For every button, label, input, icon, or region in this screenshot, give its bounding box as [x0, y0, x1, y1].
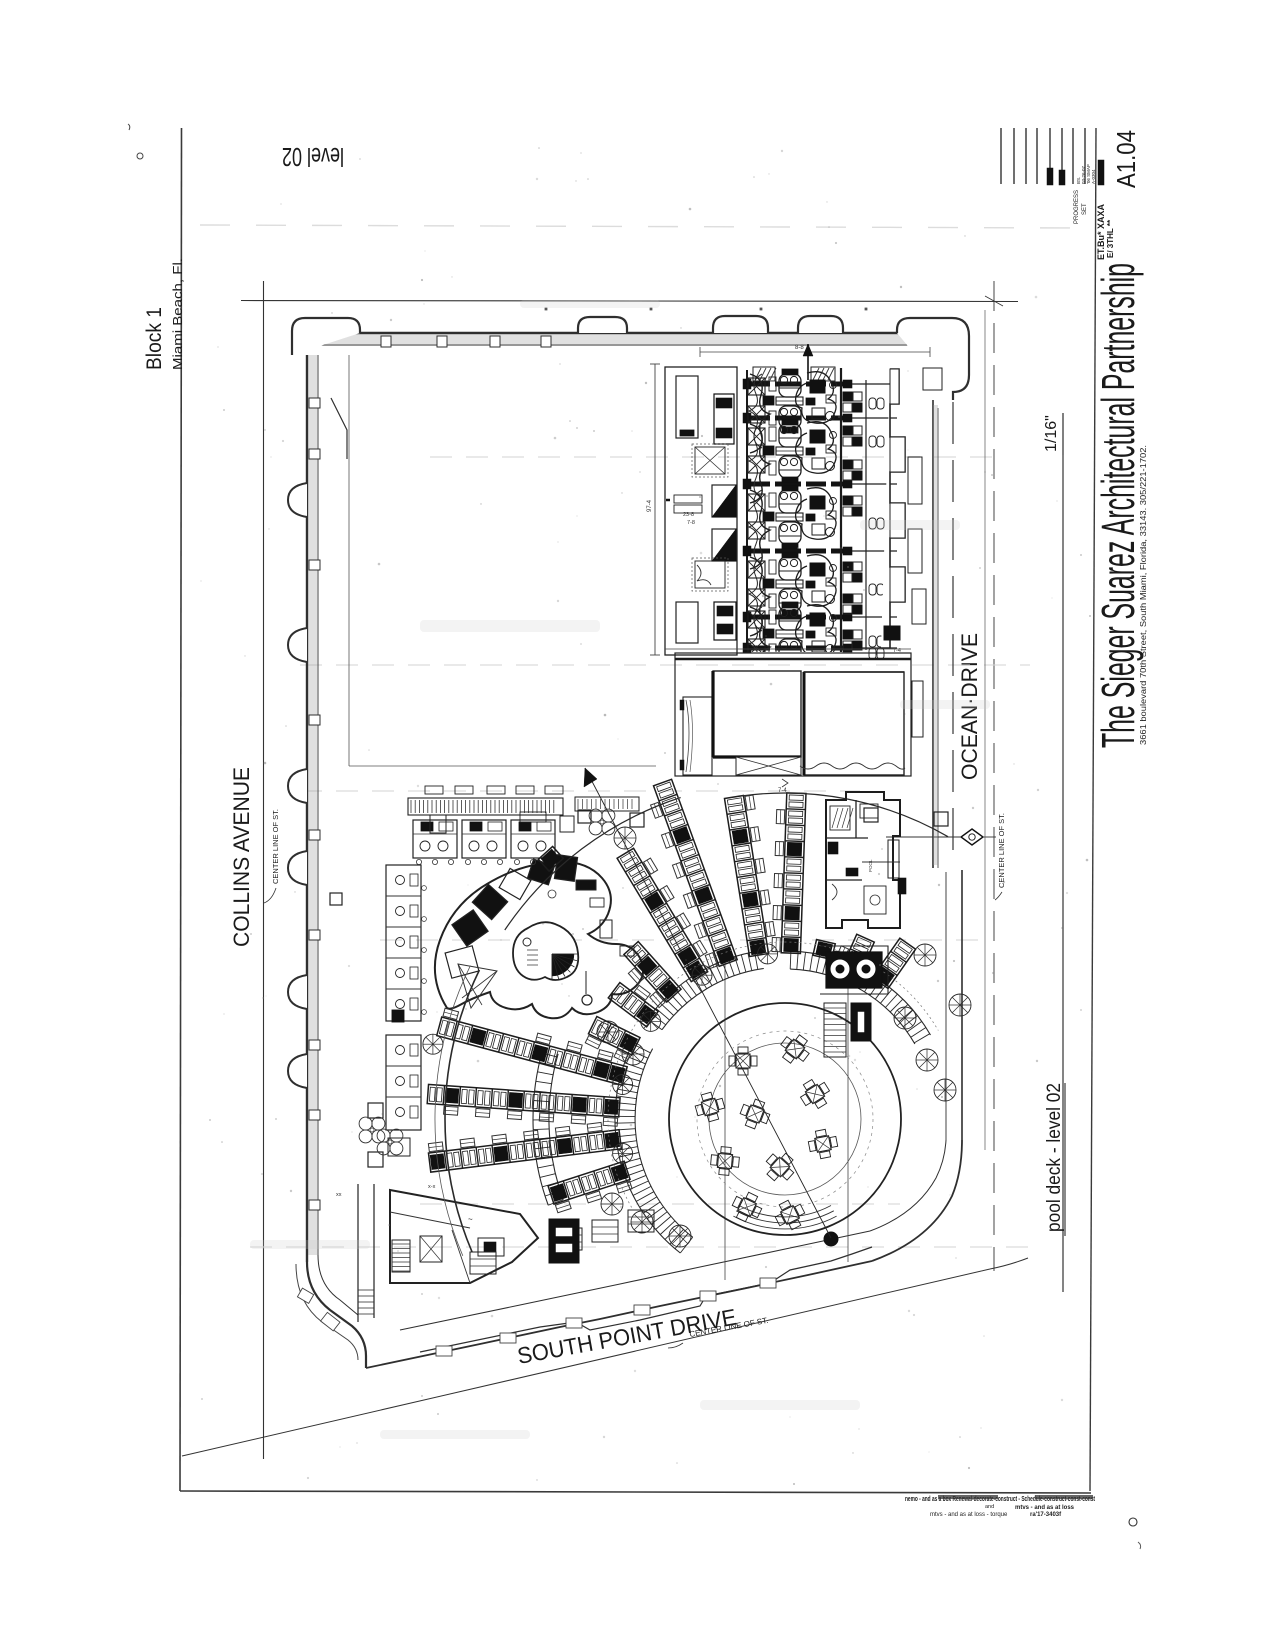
svg-text:and: and: [985, 1504, 994, 1510]
svg-text:POOL: POOL: [868, 859, 873, 872]
svg-text:CENTER LINE OF ST.: CENTER LINE OF ST.: [271, 809, 280, 884]
svg-text:Miami Beach, Fl.: Miami Beach, Fl.: [171, 258, 185, 370]
svg-text:PROGRESS: PROGRESS: [1074, 190, 1080, 224]
svg-text:7-8: 7-8: [687, 520, 695, 526]
svg-text:pool deck - level 02: pool deck - level 02: [1044, 1083, 1065, 1232]
svg-text:Block 1: Block 1: [143, 307, 166, 370]
svg-text:x-x: x-x: [428, 1184, 436, 1190]
svg-text:A-0304: A-0304: [1091, 169, 1096, 184]
svg-text:CENTER LINE OF ST.: CENTER LINE OF ST.: [997, 813, 1006, 888]
svg-text:A1.04: A1.04: [1111, 130, 1141, 188]
svg-text:ra'17-3403f: ra'17-3403f: [1030, 1512, 1062, 1518]
svg-text:The Sieger Suarez Architect: The Sieger Suarez Architectural Partners…: [1092, 263, 1144, 748]
svg-text:3661 boulevard 70th Street, So: 3661 boulevard 70th Street, South Miami,…: [1139, 445, 1148, 745]
svg-text:E/ 3THL **: E/ 3THL **: [1106, 219, 1115, 258]
svg-text:23-8: 23-8: [683, 512, 694, 518]
svg-text:COLLINS AVENUE: COLLINS AVENUE: [229, 767, 254, 947]
svg-text:~: ~: [468, 1215, 473, 1224]
svg-text:xx: xx: [336, 1192, 342, 1198]
svg-text:mtvs - and as at loss - torque: mtvs - and as at loss - torque: [930, 1512, 1008, 1518]
svg-text:SET: SET: [1082, 203, 1088, 215]
svg-text:mtvs - and as at loss: mtvs - and as at loss: [1015, 1505, 1075, 1511]
svg-text:level 02: level 02: [282, 142, 344, 172]
svg-text:ET.Bu* XAXA: ET.Bu* XAXA: [1096, 203, 1106, 260]
svg-text:1/16": 1/16": [1043, 415, 1060, 452]
svg-text:97-4: 97-4: [647, 499, 653, 512]
svg-text:8-8: 8-8: [795, 345, 804, 351]
